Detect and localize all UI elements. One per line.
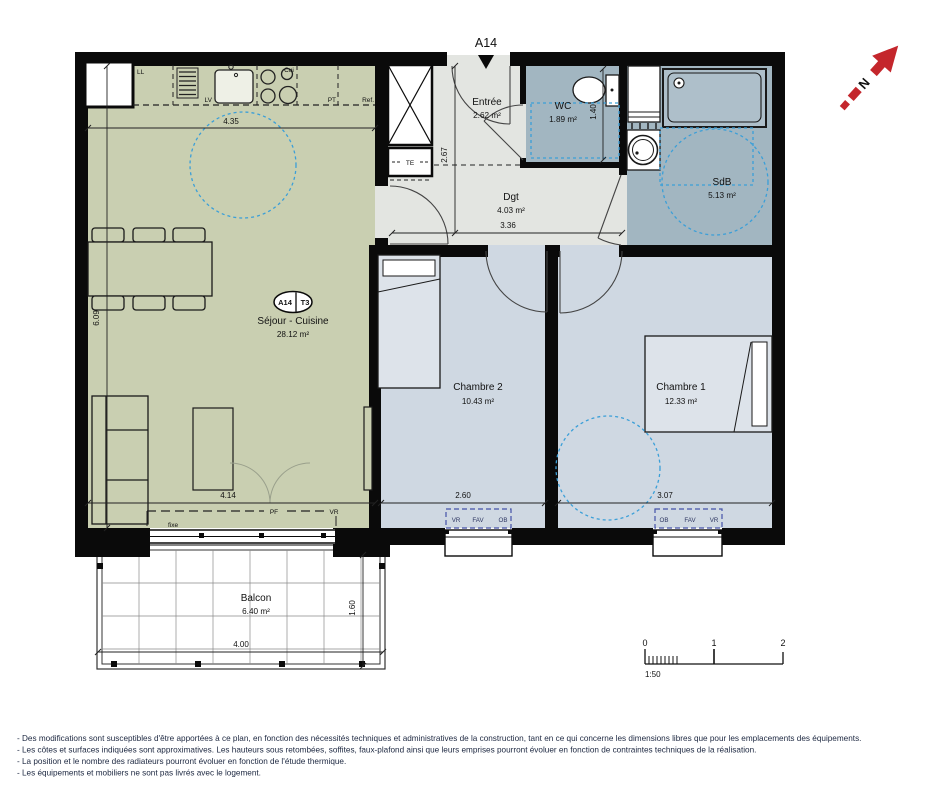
ch1-vr-label: VR xyxy=(710,517,719,524)
label-chambre1-area: 12.33 m² xyxy=(665,397,698,406)
window-sejour xyxy=(150,529,335,544)
north-arrow-icon: N xyxy=(833,37,908,116)
label-entree-name: Entrée xyxy=(472,97,502,108)
wall-bottom-5 xyxy=(722,528,785,545)
badge-unit: A14 xyxy=(278,298,293,307)
dim-dgt-width: 3.36 xyxy=(500,221,516,230)
floor-plan-page: TE LL LV Cui PT Ref. xyxy=(0,0,933,800)
duct-box xyxy=(85,62,133,107)
sideboard xyxy=(364,407,372,490)
sofa xyxy=(92,396,148,524)
label-sejour-name: Séjour - Cuisine xyxy=(257,316,329,327)
washbasin xyxy=(627,130,660,170)
label-balcon-name: Balcon xyxy=(241,593,272,604)
wall-wc-sdb xyxy=(619,65,627,175)
label-chambre1-name: Chambre 1 xyxy=(656,382,706,393)
kitchen-lv-label: LV xyxy=(205,97,213,104)
ch1-fav-label: FAV xyxy=(684,517,696,524)
label-wc-name: WC xyxy=(555,101,572,112)
vr-label-sejour: VR xyxy=(329,509,338,516)
unit-badge: A14 T3 xyxy=(274,292,312,313)
wall-bottom-4 xyxy=(512,528,653,545)
label-sdb-name: SdB xyxy=(713,177,732,188)
label-dgt-area: 4.03 m² xyxy=(497,206,525,215)
pf-label: PF xyxy=(270,509,278,516)
label-entree-area: 2.62 m² xyxy=(473,111,501,120)
scale-minor-ticks xyxy=(649,656,677,664)
label-chambre2-area: 10.43 m² xyxy=(462,397,495,406)
scale-bar: 0 1 2 1:50 xyxy=(642,638,785,679)
badge-type: T3 xyxy=(301,298,310,307)
label-balcon-area: 6.40 m² xyxy=(242,607,270,616)
kitchen-ll-label: LL xyxy=(137,69,145,76)
dim-entree-height: 2.67 xyxy=(440,147,449,163)
label-chambre2-name: Chambre 2 xyxy=(453,382,503,393)
label-wc-area: 1.89 m² xyxy=(549,115,577,124)
dim-sejour-bottom: 4.14 xyxy=(220,491,236,500)
unit-number-label: A14 xyxy=(475,36,497,50)
scale-1: 1 xyxy=(711,638,716,648)
wall-right xyxy=(772,52,785,545)
dim-sejour-left: 6.09 xyxy=(92,310,101,326)
shaft-box xyxy=(388,65,432,145)
dim-wc-width: 1.40 xyxy=(589,104,598,120)
label-dgt-name: Dgt xyxy=(503,192,519,203)
wall-bottom-3 xyxy=(390,528,445,545)
dim-chambre1-width: 3.07 xyxy=(657,491,673,500)
te-box: TE xyxy=(388,148,432,176)
coffee-table xyxy=(193,408,233,490)
dim-sejour-top: 4.35 xyxy=(223,117,239,126)
room-wc-floor xyxy=(526,65,619,162)
kitchen-ref-label: Ref. xyxy=(362,97,374,104)
disclaimer-line-1: - Des modifications sont susceptibles d'… xyxy=(17,734,861,743)
wall-wc-left xyxy=(520,65,526,104)
wall-bottom-1 xyxy=(75,528,150,557)
window-chambre1 xyxy=(653,530,722,556)
wall-wc-bottom xyxy=(520,162,627,168)
disclaimer-line-3: - La position et le nombre des radiateur… xyxy=(17,757,346,766)
scale-ratio: 1:50 xyxy=(645,670,661,679)
label-sejour-area: 28.12 m² xyxy=(277,330,310,339)
ch2-ob-label: OB xyxy=(499,517,508,524)
wall-sejour-entree xyxy=(375,52,388,186)
scale-2: 2 xyxy=(780,638,785,648)
ch2-vr-label: VR xyxy=(452,517,461,524)
shower xyxy=(663,69,766,127)
window-chambre2 xyxy=(445,530,512,556)
wall-sdb-pier xyxy=(619,245,627,257)
kitchen-cui-label: Cui xyxy=(284,67,294,74)
disclaimer: - Des modifications sont susceptibles d'… xyxy=(17,734,861,778)
bathroom-cabinet xyxy=(628,66,660,129)
toilet xyxy=(573,75,619,106)
dim-balcon-width: 4.00 xyxy=(233,640,249,649)
kitchen-pt-label: PT xyxy=(328,97,336,104)
te-label: TE xyxy=(406,160,415,167)
dim-chambre2-width: 2.60 xyxy=(455,491,471,500)
wall-left xyxy=(75,52,88,545)
bed-chambre2 xyxy=(378,255,440,388)
wall-bottom-2 xyxy=(333,528,390,557)
scale-0: 0 xyxy=(642,638,647,648)
balcony xyxy=(97,545,385,669)
fixe-label: fixe xyxy=(168,522,179,529)
wall-top-right xyxy=(510,52,785,66)
wall-sdb-ch1 xyxy=(622,245,785,257)
dim-balcon-depth: 1.60 xyxy=(348,600,357,616)
disclaimer-line-2: - Les côtes et surfaces indiquées sont a… xyxy=(17,746,756,755)
floor-plan-drawing: TE LL LV Cui PT Ref. xyxy=(0,0,933,800)
ch2-fav-label: FAV xyxy=(472,517,484,524)
disclaimer-line-4: - Les équipements et mobiliers ne sont p… xyxy=(17,769,261,778)
ch1-ob-label: OB xyxy=(660,517,669,524)
label-sdb-area: 5.13 m² xyxy=(708,191,736,200)
kitchen-sink xyxy=(215,65,253,103)
